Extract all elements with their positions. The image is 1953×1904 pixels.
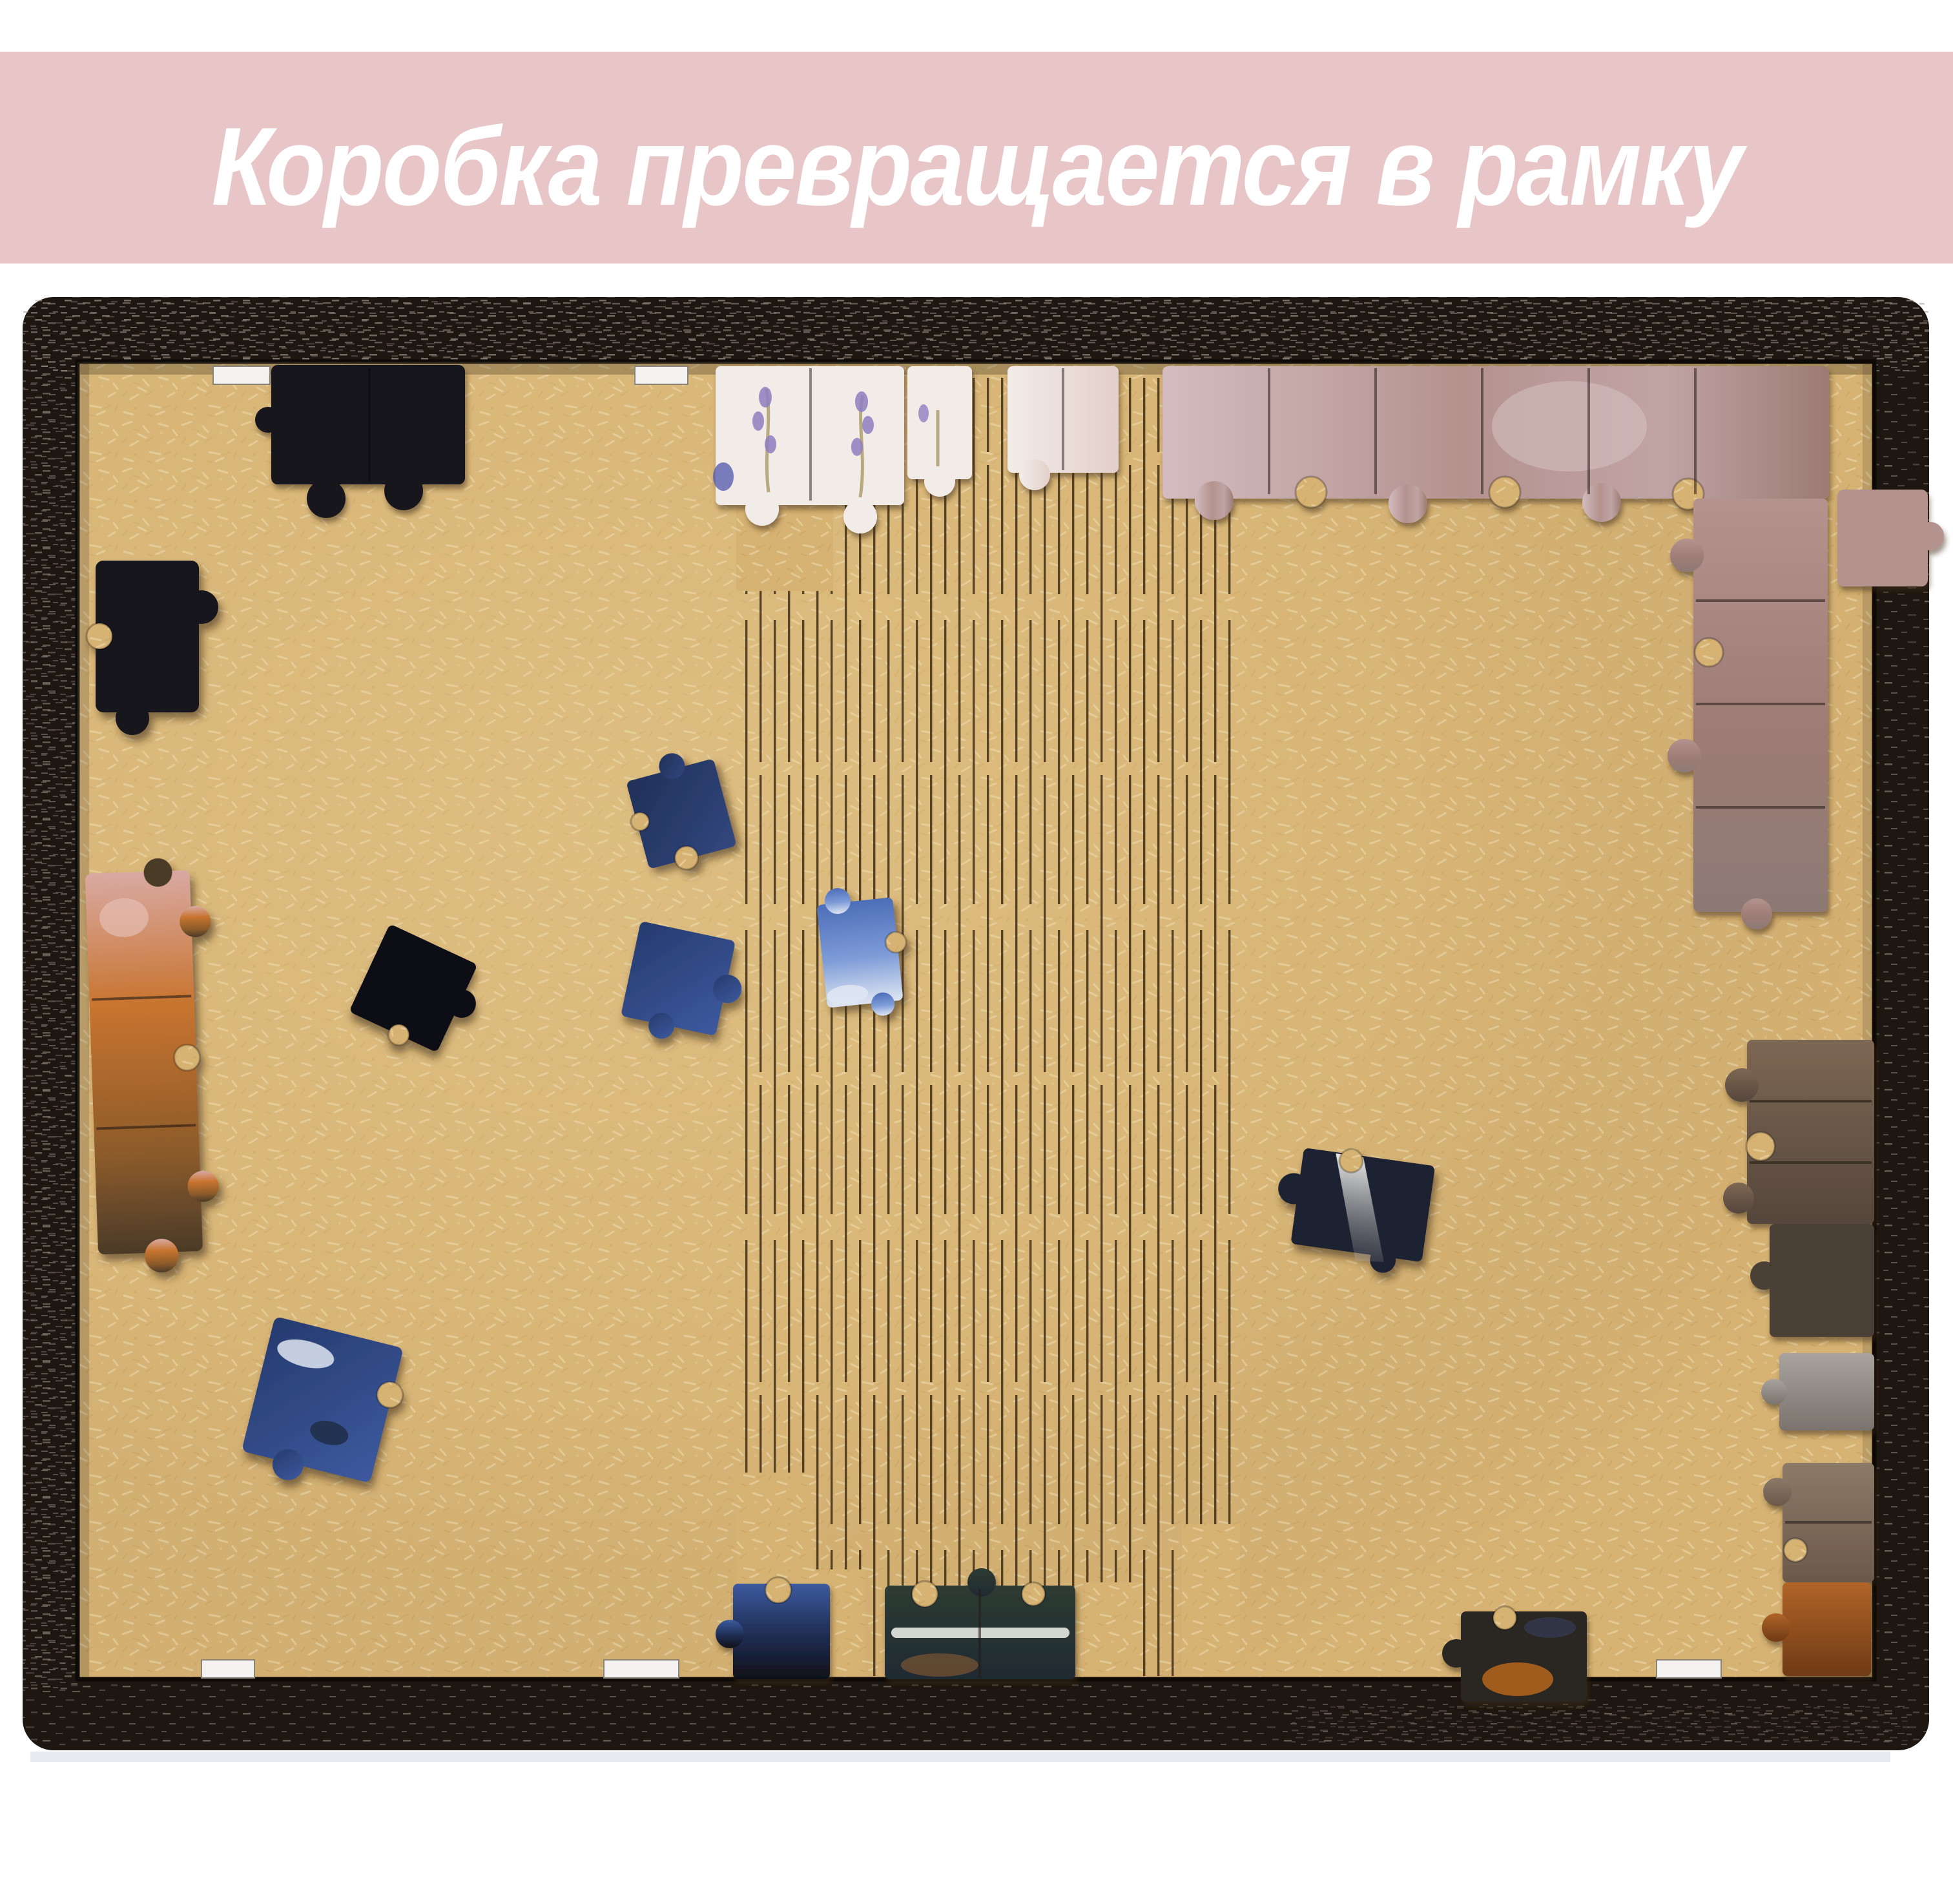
- table-reflection: [30, 1752, 1890, 1762]
- slot-tab: [604, 1660, 679, 1678]
- banner-text: Коробка превращается в рамку: [211, 93, 1741, 222]
- puzzle-strip-white-pink: [1008, 366, 1119, 490]
- puzzle-piece-white-single: [907, 366, 972, 497]
- puzzle-piece-bottom-dark-orange: [1442, 1606, 1587, 1702]
- frame-left-bar: [23, 362, 82, 1692]
- board-left-shadow: [80, 364, 89, 1677]
- promo-banner: Коробка превращается в рамку: [0, 52, 1953, 264]
- living-hinge: [736, 378, 1240, 1676]
- product-photo: [0, 294, 1953, 1773]
- slot-tab: [201, 1660, 254, 1678]
- frame-bottom-bar: [1292, 1705, 1912, 1744]
- slot-tab: [213, 366, 270, 384]
- slot-tab: [1657, 1660, 1721, 1678]
- slot-tab: [635, 366, 688, 384]
